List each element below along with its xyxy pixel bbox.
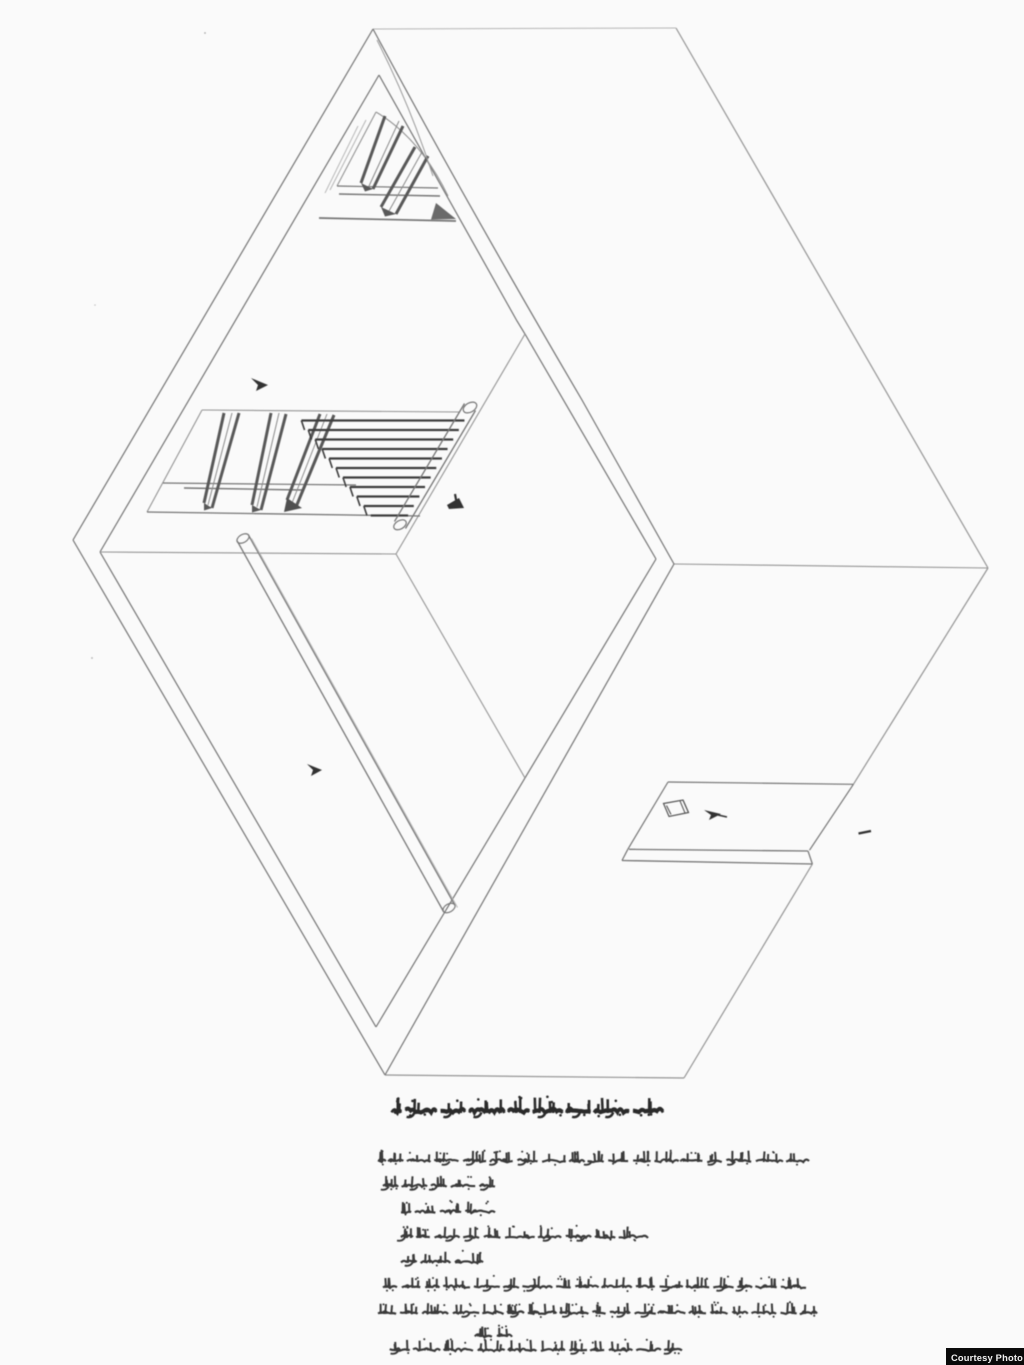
svg-text:Courtesy Photo: Courtesy Photo	[951, 1353, 1023, 1363]
